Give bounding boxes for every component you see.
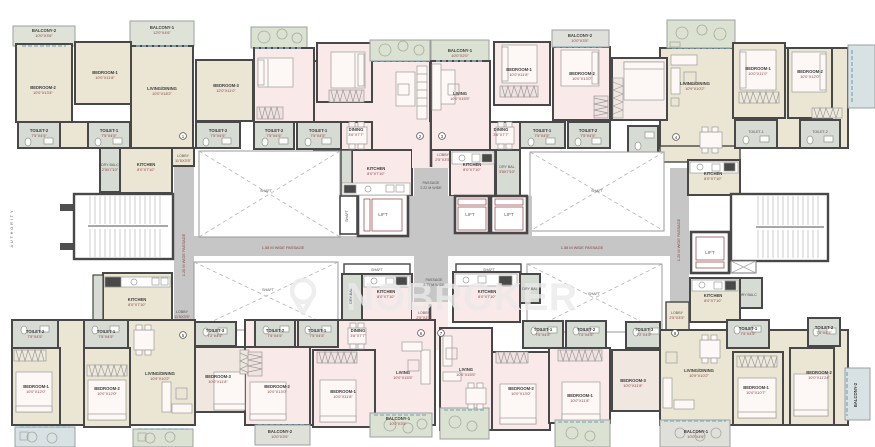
- svg-text:10'0"X11'8": 10'0"X11'8": [509, 72, 529, 77]
- svg-text:10'0"X15'5": 10'0"X15'5": [456, 372, 476, 377]
- svg-text:SHAFT: SHAFT: [483, 268, 496, 272]
- svg-text:10'0"X18'2": 10'0"X18'2": [152, 91, 172, 96]
- svg-text:3'6"X7'7": 3'6"X7'7": [493, 132, 509, 137]
- svg-text:11'5X3'5": 11'5X3'5": [174, 314, 191, 319]
- svg-text:7'5"X4'5": 7'5"X4'5": [31, 133, 47, 138]
- svg-text:SHAFT: SHAFT: [260, 189, 273, 193]
- svg-text:2'5"X3'5": 2'5"X3'5": [435, 157, 451, 162]
- svg-text:10'0"X13'4": 10'0"X13'4": [33, 90, 53, 95]
- svg-text:7'5"X4'5": 7'5"X4'5": [580, 133, 596, 138]
- svg-text:DRY BALC: DRY BALC: [739, 293, 757, 297]
- svg-text:PASSAGE: PASSAGE: [423, 181, 441, 185]
- svg-text:7'5"X4'5": 7'5"X4'5": [534, 133, 550, 138]
- svg-text:7'5"X4'5": 7'5"X4'5": [101, 133, 117, 138]
- svg-text:8'0"X7'10": 8'0"X7'10": [704, 176, 722, 181]
- svg-text:7'5"X4'5": 7'5"X4'5": [310, 133, 326, 138]
- svg-text:8'0"X7'10": 8'0"X7'10": [128, 302, 146, 307]
- svg-text:7'5"X4'5": 7'5"X4'5": [266, 133, 282, 138]
- svg-text:10'0"X11'8": 10'0"X11'8": [570, 398, 590, 403]
- svg-text:SHAFT: SHAFT: [591, 189, 604, 193]
- svg-text:10'0"X3'5": 10'0"X3'5": [389, 421, 407, 426]
- svg-text:SHAFT: SHAFT: [588, 292, 601, 296]
- svg-text:8'0"X7'10": 8'0"X7'10": [704, 298, 722, 303]
- svg-text:8'0"X7'10": 8'0"X7'10": [463, 167, 481, 172]
- svg-text:10'9"X10'2": 10'9"X10'2": [150, 376, 170, 381]
- svg-text:11'5X3'5": 11'5X3'5": [175, 158, 192, 163]
- svg-text:2'5"X3'5": 2'5"X3'5": [416, 315, 432, 320]
- svg-text:7'5"X4'5": 7'5"X4'5": [27, 334, 43, 339]
- svg-text:8'0"X7'10": 8'0"X7'10": [367, 171, 385, 176]
- svg-text:3'5X7'10": 3'5X7'10": [499, 169, 516, 174]
- svg-text:DRY BAL: DRY BAL: [522, 287, 537, 291]
- svg-text:1.20 M WIDE PASSAGE: 1.20 M WIDE PASSAGE: [181, 233, 186, 276]
- svg-text:1.20 M WIDE PASSAGE: 1.20 M WIDE PASSAGE: [676, 218, 681, 261]
- svg-text:10'0"X4'6": 10'0"X4'6": [687, 434, 705, 439]
- svg-text:BALCONY-2: BALCONY-2: [853, 382, 858, 407]
- svg-text:10'0"X2'0": 10'0"X2'0": [451, 53, 469, 58]
- svg-text:8'0"X7'10": 8'0"X7'10": [377, 294, 395, 299]
- svg-text:10'0"X13'0": 10'0"X13'0": [511, 391, 531, 396]
- svg-text:2.77 M WIDE: 2.77 M WIDE: [423, 283, 445, 287]
- svg-text:2'5X7'10": 2'5X7'10": [102, 167, 119, 172]
- svg-text:8'0"X7'10": 8'0"X7'10": [478, 294, 496, 299]
- svg-text:1.58 M WIDE PASSAGE: 1.58 M WIDE PASSAGE: [262, 245, 305, 250]
- svg-text:AUTHORITY: AUTHORITY: [10, 209, 14, 248]
- svg-text:PASSAGE: PASSAGE: [426, 278, 444, 282]
- svg-text:LIFT: LIFT: [465, 212, 475, 217]
- svg-text:7'5"X4'5": 7'5"X4'5": [816, 330, 832, 335]
- svg-text:10'0"X3'5": 10'0"X3'5": [271, 434, 289, 439]
- svg-text:12'0"X11'0": 12'0"X11'0": [216, 88, 236, 93]
- svg-text:10'0"X11'8": 10'0"X11'8": [95, 75, 115, 80]
- svg-text:2'5"X3'5": 2'5"X3'5": [669, 315, 685, 320]
- svg-text:7'2"X4'5": 7'2"X4'5": [207, 333, 223, 338]
- svg-text:7'5"X4'5": 7'5"X4'5": [535, 332, 551, 337]
- svg-text:10'0"X10'7": 10'0"X10'7": [746, 390, 766, 395]
- svg-text:10'0"X13'0": 10'0"X13'0": [267, 389, 287, 394]
- svg-text:12'0"X4'6": 12'0"X4'6": [153, 30, 171, 35]
- svg-text:10'0"X12'0": 10'0"X12'0": [26, 389, 46, 394]
- svg-text:LIFT: LIFT: [378, 212, 388, 217]
- svg-text:7'5"X4'5": 7'5"X4'5": [210, 133, 226, 138]
- svg-text:10'0"X11'8": 10'0"X11'8": [208, 379, 228, 384]
- svg-text:DRY-BAL: DRY-BAL: [349, 288, 353, 303]
- svg-text:10'9"X10'2": 10'9"X10'2": [689, 373, 709, 378]
- svg-text:7'2"X4'5": 7'2"X4'5": [636, 332, 652, 337]
- svg-text:10'9"X10'2": 10'9"X10'2": [685, 86, 705, 91]
- svg-text:LIFT: LIFT: [705, 250, 715, 255]
- svg-text:LIFT: LIFT: [504, 212, 514, 217]
- svg-text:7'5"X4'5": 7'5"X4'5": [98, 334, 114, 339]
- svg-text:SHAFT: SHAFT: [371, 268, 384, 272]
- svg-text:7'5"X4'5": 7'5"X4'5": [740, 331, 756, 336]
- svg-text:TOILET-1: TOILET-1: [748, 130, 764, 134]
- svg-text:10'0"X3'6": 10'0"X3'6": [35, 33, 53, 38]
- svg-text:10'0"X15'5": 10'0"X15'5": [450, 96, 470, 101]
- svg-text:2.22 M WIDE: 2.22 M WIDE: [420, 186, 442, 190]
- svg-text:1.58 M WIDE PASSAGE: 1.58 M WIDE PASSAGE: [561, 245, 604, 250]
- svg-text:3'6"X7'7": 3'6"X7'7": [350, 333, 366, 338]
- svg-text:10'0"X11'8": 10'0"X11'8": [333, 394, 353, 399]
- svg-text:10'0"X3'5": 10'0"X3'5": [571, 38, 589, 43]
- svg-text:10'0"X12'0": 10'0"X12'0": [800, 74, 820, 79]
- svg-text:7'5"X4'5": 7'5"X4'5": [309, 333, 325, 338]
- svg-text:10'0"X13'0": 10'0"X13'0": [572, 76, 592, 81]
- svg-text:3'6"X7'7": 3'6"X7'7": [348, 132, 364, 137]
- svg-text:7'5"X4'5": 7'5"X4'5": [578, 332, 594, 337]
- svg-text:10'0"X11'0": 10'0"X11'0": [748, 71, 768, 76]
- svg-text:SHAFT: SHAFT: [262, 288, 275, 292]
- svg-text:10'0"X15'5": 10'0"X15'5": [393, 375, 413, 380]
- svg-text:10'0"X11'24": 10'0"X11'24": [808, 375, 830, 380]
- svg-text:SHAFT: SHAFT: [345, 209, 349, 222]
- svg-text:TOILET-2: TOILET-2: [812, 130, 828, 134]
- svg-text:7'5"X4'5": 7'5"X4'5": [267, 333, 283, 338]
- svg-text:8'0"X7'10": 8'0"X7'10": [137, 167, 155, 172]
- svg-text:10'0"X11'8": 10'0"X11'8": [623, 383, 643, 388]
- svg-text:10'0"X12'0": 10'0"X12'0": [97, 391, 117, 396]
